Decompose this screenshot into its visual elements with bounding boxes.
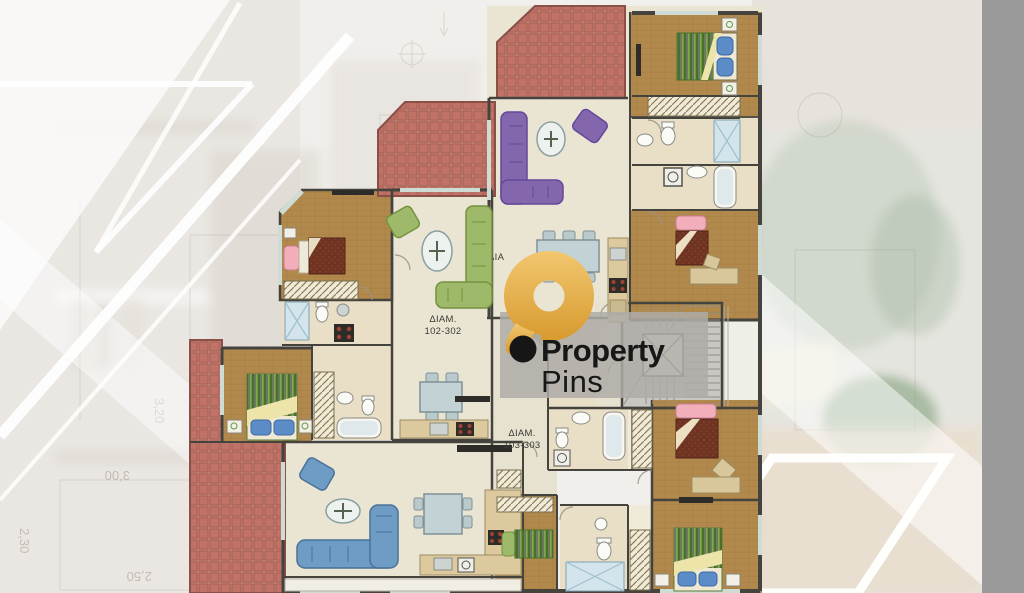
sink	[572, 412, 590, 424]
closet-102	[284, 281, 358, 299]
sofa-green-leg	[436, 282, 492, 308]
desk	[690, 268, 738, 284]
kitchen-sink	[430, 423, 448, 435]
brand-name-line2: Pins	[541, 364, 603, 399]
right-gray-bar	[982, 0, 1024, 593]
tv-unit	[636, 44, 641, 76]
pillow	[274, 420, 294, 435]
nightstand	[726, 574, 740, 586]
dim-label-230: 2,30	[17, 528, 32, 553]
washing-machine	[458, 558, 474, 572]
apt-102-label-line1: ΔΙΑΜ.	[429, 314, 456, 325]
apt-102-label: ΔΙΑΜ. 102-302	[425, 314, 462, 337]
closet-103-a	[632, 410, 652, 468]
coffee-table-101	[537, 122, 565, 156]
pillow-green	[502, 532, 515, 556]
dim-label-250: 2,50	[127, 569, 152, 584]
toilet	[556, 432, 568, 448]
balcony-103	[285, 579, 521, 591]
nightstand	[655, 574, 669, 586]
tv-unit	[679, 497, 713, 503]
pillow	[678, 572, 696, 586]
sink	[687, 166, 707, 178]
toilet	[316, 306, 328, 322]
pillow-pink	[676, 404, 716, 418]
nightstand	[722, 18, 737, 31]
dim-label-300: 3,00	[105, 468, 130, 483]
closet	[314, 372, 334, 438]
counter-unit	[610, 300, 626, 314]
sink	[337, 304, 349, 316]
stove	[334, 324, 354, 342]
washing-machine	[664, 168, 682, 186]
tv-unit	[455, 396, 490, 402]
apt-103-label: ΔΙΑΜ. 103-303	[504, 428, 541, 451]
pillow-pink	[676, 216, 706, 230]
sink	[337, 392, 353, 404]
roof-upper-left	[378, 102, 495, 196]
nightstand	[284, 228, 296, 238]
apt-102-label-line2: 102-302	[425, 326, 462, 337]
stove	[609, 278, 627, 293]
kitchen-sink	[610, 248, 626, 260]
sink	[595, 518, 607, 530]
toilet	[362, 399, 374, 415]
nightstand	[227, 420, 242, 433]
kitchen-101	[608, 238, 628, 322]
floorplan-poster: 3,20 3,00 2,30 2,50	[0, 0, 1024, 593]
nightstand	[299, 420, 312, 433]
washing-machine	[554, 450, 570, 466]
toilet	[597, 542, 611, 560]
pillow	[699, 572, 717, 586]
desk	[692, 477, 740, 493]
nightstand	[722, 82, 737, 95]
sink	[637, 134, 653, 146]
closet	[497, 497, 553, 512]
stove	[456, 422, 474, 436]
toilet	[661, 127, 675, 145]
roof-bottom-left	[190, 442, 285, 593]
floorplan-canvas: 3,20 3,00 2,30 2,50	[0, 0, 1024, 593]
bed-blanket	[515, 530, 553, 558]
apt-103-label-line2: 103-303	[504, 440, 541, 451]
pillow	[251, 420, 271, 435]
apt-103-label-line1: ΔΙΑΜ.	[508, 428, 535, 439]
pillow	[717, 58, 733, 76]
dining-table-103	[424, 494, 462, 534]
sofa-blue-leg	[370, 505, 398, 568]
roof-left-strip	[190, 340, 222, 442]
closet-103-b	[630, 530, 650, 590]
tv-unit	[332, 190, 374, 195]
brand-name-line1: Property	[541, 333, 666, 368]
pillow	[717, 37, 733, 55]
kitchen-sink	[434, 558, 452, 570]
pillow-pink	[284, 246, 299, 270]
logo-dot-icon	[510, 336, 537, 363]
